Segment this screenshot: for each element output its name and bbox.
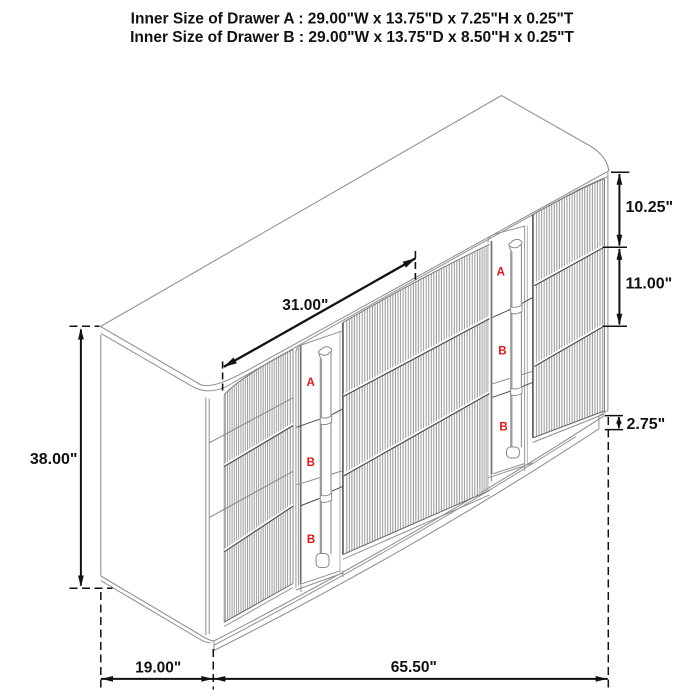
svg-text:10.25": 10.25" bbox=[626, 199, 674, 216]
svg-text:38.00": 38.00" bbox=[30, 451, 78, 468]
svg-text:B: B bbox=[307, 534, 315, 546]
svg-text:Inner Size of Drawer B : 29.00: Inner Size of Drawer B : 29.00"W x 13.75… bbox=[130, 29, 574, 46]
svg-text:19.00": 19.00" bbox=[135, 659, 181, 676]
svg-text:11.00": 11.00" bbox=[626, 275, 673, 292]
svg-text:65.50": 65.50" bbox=[391, 659, 437, 676]
svg-text:2.75": 2.75" bbox=[627, 416, 666, 433]
svg-text:A: A bbox=[306, 377, 314, 389]
svg-text:B: B bbox=[499, 422, 507, 434]
svg-text:A: A bbox=[497, 267, 505, 279]
svg-text:B: B bbox=[498, 346, 506, 358]
svg-text:B: B bbox=[307, 457, 315, 469]
svg-text:31.00": 31.00" bbox=[282, 297, 328, 314]
svg-text:Inner Size of Drawer A : 29.00: Inner Size of Drawer A : 29.00"W x 13.75… bbox=[131, 11, 574, 28]
